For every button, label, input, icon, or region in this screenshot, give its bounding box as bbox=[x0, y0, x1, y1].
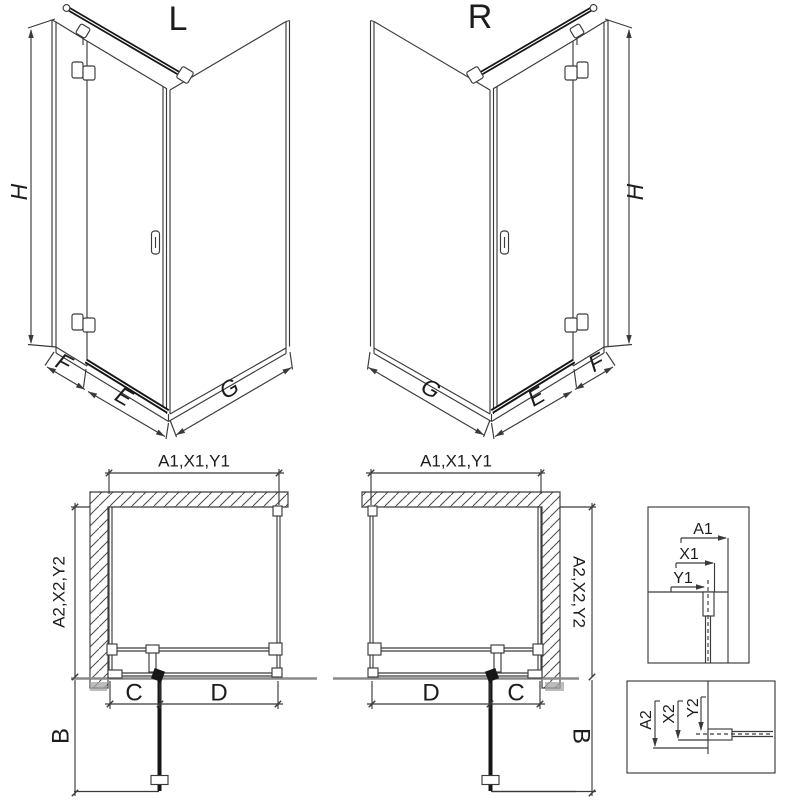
3d-view-left: L H F E G bbox=[6, 0, 293, 439]
detail-inset-bottom: A2 X2 Y2 bbox=[627, 681, 775, 773]
detail-bottom-y2-label: Y2 bbox=[685, 698, 702, 718]
3d-view-right: R H F E G bbox=[367, 0, 648, 439]
plan-right-top-dim-label: A1,X1,Y1 bbox=[420, 451, 492, 470]
detail-inset-top: A1 X1 Y1 bbox=[648, 507, 749, 663]
plan-left-side-dim-label: A2,X2,Y2 bbox=[49, 556, 68, 628]
plan-left-top-dim-label: A1,X1,Y1 bbox=[158, 451, 230, 470]
wall-shadow bbox=[90, 682, 107, 691]
detail-top-y1-label: Y1 bbox=[673, 570, 693, 587]
wall-hatch-left-plan bbox=[90, 492, 288, 688]
dim-label-h-left: H bbox=[6, 183, 32, 200]
plan-view-left: A1,X1,Y1 A2,X2,Y2 B C D bbox=[47, 451, 317, 796]
view-left-title: L bbox=[169, 0, 188, 38]
detail-top-x1-label: X1 bbox=[679, 546, 699, 563]
dim-label-g-left: G bbox=[215, 373, 243, 404]
detail-bottom-x2-label: X2 bbox=[661, 704, 678, 724]
detail-top-a1-label: A1 bbox=[693, 521, 713, 538]
shower-enclosure-technical-diagram: L H F E G R H F E G A1,X1,Y1 A2,X2,Y2 B bbox=[0, 0, 800, 800]
plan-left-d-dim-label: D bbox=[210, 679, 227, 706]
view-right-title: R bbox=[468, 0, 493, 36]
plan-right-side-dim-label: A2,X2,Y2 bbox=[570, 556, 589, 628]
plan-right-b-dim-label: B bbox=[568, 728, 595, 744]
plan-left-c-dim-label: C bbox=[125, 679, 142, 706]
plan-view-right: A1,X1,Y1 A2,X2,Y2 B D C bbox=[333, 451, 596, 796]
dim-label-h-right: H bbox=[622, 183, 648, 200]
detail-bottom-a2-label: A2 bbox=[638, 710, 655, 730]
wall-hatch-right-plan bbox=[362, 492, 560, 688]
plan-right-c-dim-label: C bbox=[507, 679, 524, 706]
dim-label-g-right: G bbox=[417, 373, 445, 404]
plan-right-d-dim-label: D bbox=[422, 679, 439, 706]
wall-shadow bbox=[545, 682, 564, 691]
plan-left-b-dim-label: B bbox=[47, 728, 74, 744]
